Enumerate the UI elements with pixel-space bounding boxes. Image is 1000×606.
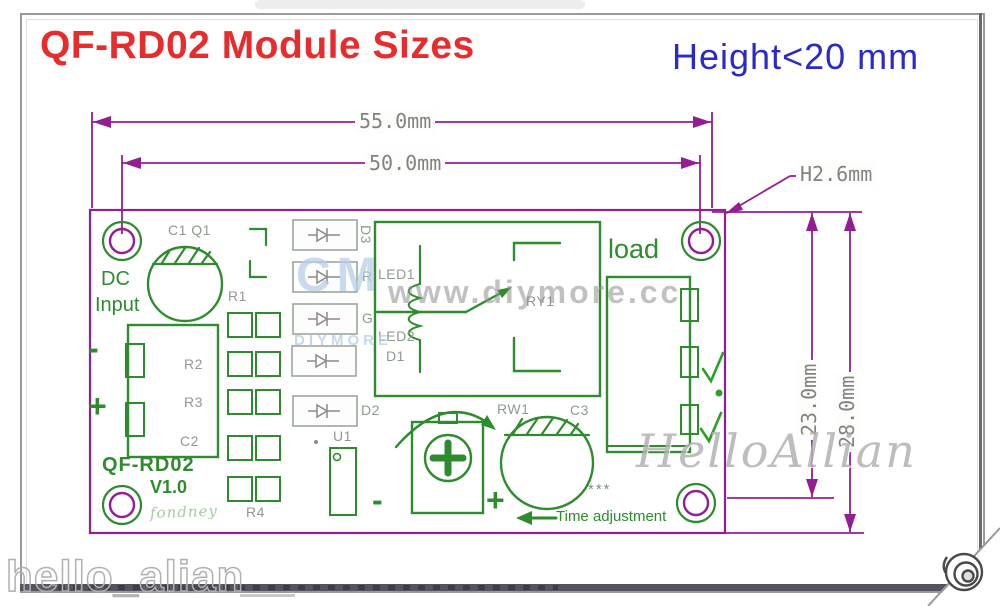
minus-mark: - [372, 490, 383, 510]
dc-input-line1: DC [101, 268, 130, 291]
label-r1: R1 [228, 288, 247, 304]
label-d3: D3 [358, 225, 374, 244]
bottom-smudge [240, 594, 295, 597]
version-label: V1.0 [150, 477, 187, 498]
minus-mark: - [88, 338, 99, 358]
signature-script: fondney [150, 502, 218, 522]
label-rw1: RW1 [497, 401, 529, 417]
dim-inner-width: 50.0mm [365, 151, 445, 175]
watermark-script: HelloAllian [636, 424, 917, 478]
label-r2: R2 [184, 356, 203, 372]
label-c2: C2 [180, 433, 199, 449]
watermark-url: www.diymore.cc [388, 274, 681, 311]
load-label: load [608, 234, 659, 265]
label-r3: R3 [184, 394, 203, 410]
label-d2: D2 [361, 402, 380, 418]
model-label: QF-RD02 [102, 454, 195, 477]
watermark-bottom: hello_alian [6, 552, 244, 602]
page-curl-doodle [920, 515, 1000, 606]
dc-input-line2: Input [95, 294, 139, 317]
height-note: Height<20 mm [672, 36, 919, 78]
time-adjustment-label: Time adjustment [556, 508, 666, 525]
label-c1-q1: C1 Q1 [168, 222, 211, 238]
label-c3: C3 [570, 402, 589, 418]
watermark-logo-text: DIYMORE [294, 332, 392, 349]
stars-mark: *** [588, 481, 612, 498]
dim-hole-height: H2.6mm [796, 162, 876, 186]
watermark-logo: CM [296, 248, 383, 303]
label-g: G [362, 310, 373, 326]
product-image: QF-RD02 Module Sizes Height<20 mm 55.0mm… [0, 0, 1000, 606]
label-u1: U1 [333, 428, 352, 444]
plus-mark: + [486, 490, 505, 510]
page-title: QF-RD02 Module Sizes [40, 24, 475, 68]
dim-outer-width: 55.0mm [355, 109, 435, 133]
label-r4: R4 [246, 504, 265, 520]
label-d1: D1 [386, 348, 405, 364]
plus-mark: + [88, 396, 107, 416]
pin-dot [314, 440, 318, 444]
